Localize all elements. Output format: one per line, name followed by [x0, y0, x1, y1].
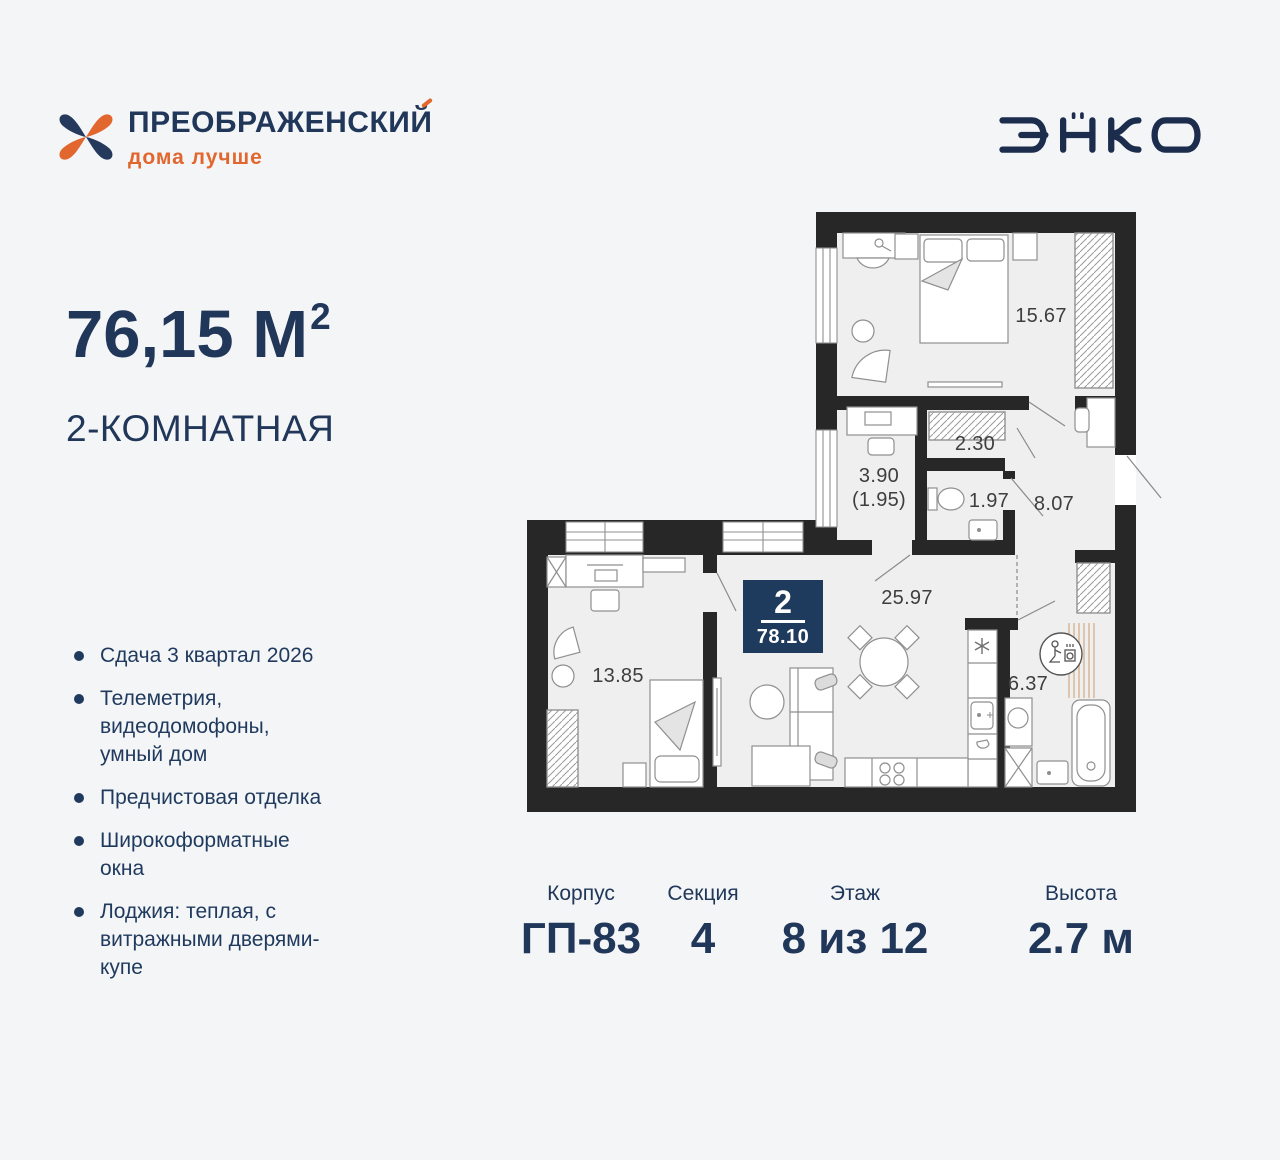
flat-area: 76,15 М2	[66, 298, 331, 368]
brand-tagline: дома лучше	[128, 146, 432, 170]
plan-badge: 2 78.10	[743, 580, 823, 653]
spec-section-value: 4	[643, 914, 763, 964]
room-label-second-bedroom: 13.85	[592, 665, 644, 687]
spec-floor: Этаж 8 из 12	[775, 882, 935, 964]
bullet-dot-icon	[74, 836, 84, 846]
brand-name-text: ПРЕОБРАЖЕНСКИЙ	[128, 106, 432, 139]
spec-floor-label: Этаж	[775, 882, 935, 906]
floor-plan: 2 78.10 15.67 2.30 3.90 (1.95) 1.97 8.07…	[527, 210, 1171, 835]
room-label-hallway: 8.07	[1034, 493, 1074, 515]
spec-floor-value: 8 из 12	[775, 914, 935, 964]
feature-item: Предчистовая отделка	[70, 784, 322, 812]
flat-card: ПРЕОБРАЖЕНСКИЙ дома лучше ЭНКО 76,15 М2 …	[0, 0, 1280, 1160]
spec-height-value: 2.7 м	[1001, 914, 1161, 964]
room-label-bathroom: 6.37	[1008, 673, 1048, 695]
spec-building-label: Корпус	[511, 882, 651, 906]
bullet-dot-icon	[74, 694, 84, 704]
feature-item: Телеметрия, видеодомофоны, умный дом	[70, 685, 322, 769]
room-label-loggia: 3.90	[859, 465, 899, 487]
spec-building-value: ГП-83	[511, 914, 651, 964]
bullet-dot-icon	[74, 651, 84, 661]
room-label-wc: 1.97	[969, 490, 1009, 512]
spec-height-label: Высота	[1001, 882, 1161, 906]
badge-total-area: 78.10	[757, 626, 810, 648]
developer-logo-icon: ЭНКО	[996, 112, 1216, 158]
brand-logo-icon	[56, 106, 116, 168]
feature-list: Сдача 3 квартал 2026 Телеметрия, видеодо…	[70, 642, 322, 997]
laundry-icon	[1040, 633, 1082, 675]
room-label-loggia-reduced: (1.95)	[852, 489, 906, 511]
feature-item: Широкоформатные окна	[70, 827, 322, 883]
brand-block: ПРЕОБРАЖЕНСКИЙ дома лучше	[128, 106, 432, 170]
room-label-kitchen-living: 25.97	[881, 587, 933, 609]
spec-section: Секция 4	[643, 882, 763, 964]
brand-name: ПРЕОБРАЖЕНСКИЙ	[128, 106, 432, 140]
feature-item: Сдача 3 квартал 2026	[70, 642, 322, 670]
room-label-bedroom: 15.67	[1015, 305, 1067, 327]
bullet-dot-icon	[74, 907, 84, 917]
spec-section-label: Секция	[643, 882, 763, 906]
room-label-wardrobe: 2.30	[955, 433, 995, 455]
bullet-dot-icon	[74, 793, 84, 803]
feature-item: Лоджия: теплая, с витражными дверями-куп…	[70, 898, 322, 982]
flat-area-value: 76,15 М	[66, 297, 308, 372]
badge-rooms-count: 2	[774, 584, 792, 620]
spec-building: Корпус ГП-83	[511, 882, 651, 964]
flat-area-sup: 2	[310, 296, 331, 337]
spec-height: Высота 2.7 м	[1001, 882, 1161, 964]
flat-type: 2-КОМНАТНАЯ	[66, 408, 334, 450]
